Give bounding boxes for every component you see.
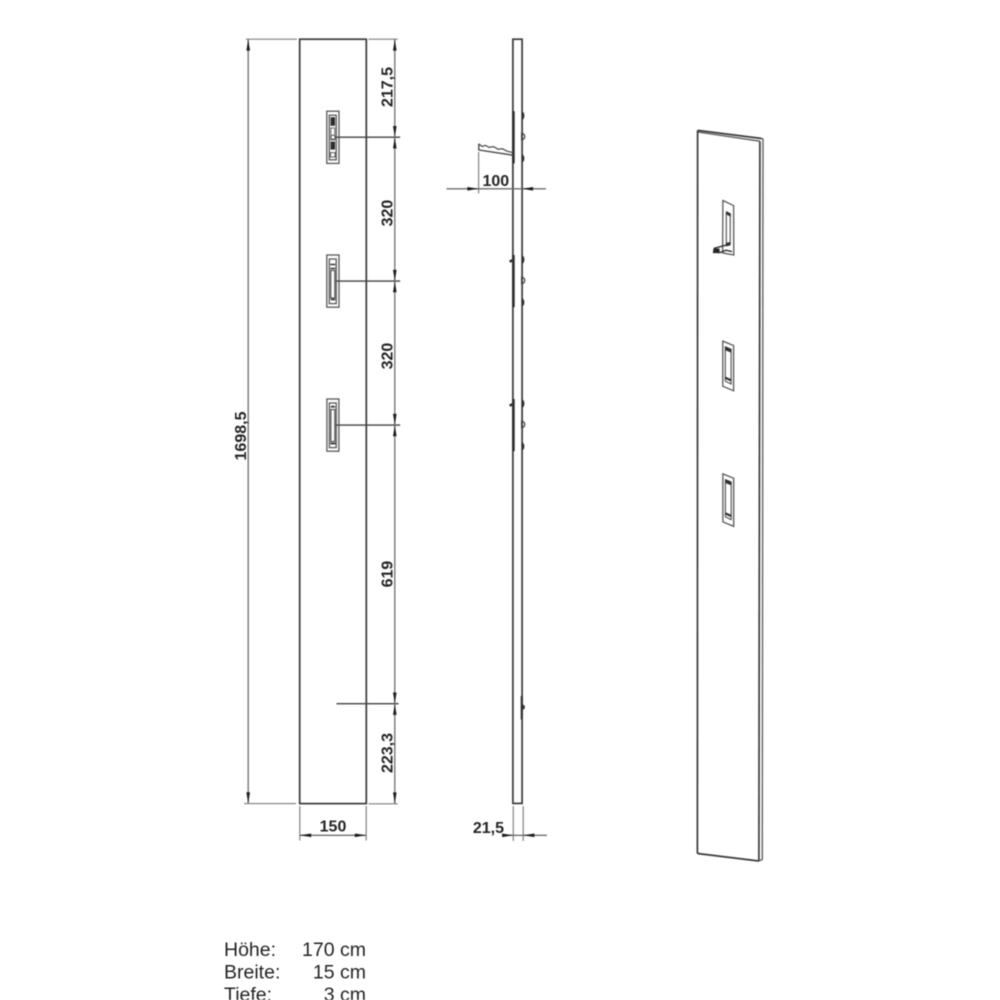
svg-text:150: 150 <box>320 819 347 836</box>
svg-text:320: 320 <box>379 343 396 370</box>
svg-text:619: 619 <box>379 561 396 588</box>
svg-text:Höhe:: Höhe: <box>224 939 276 961</box>
svg-text:223,3: 223,3 <box>379 733 396 773</box>
svg-text:320: 320 <box>379 200 396 227</box>
svg-text:3 cm: 3 cm <box>324 984 366 1000</box>
svg-text:170 cm: 170 cm <box>302 939 366 961</box>
svg-text:217,5: 217,5 <box>379 67 396 107</box>
svg-text:100: 100 <box>482 173 509 190</box>
svg-text:21,5: 21,5 <box>473 820 504 837</box>
svg-text:Breite:: Breite: <box>224 961 280 983</box>
svg-text:15 cm: 15 cm <box>313 961 366 983</box>
svg-text:Tiefe:: Tiefe: <box>224 984 272 1000</box>
svg-text:1698,5: 1698,5 <box>233 411 250 460</box>
